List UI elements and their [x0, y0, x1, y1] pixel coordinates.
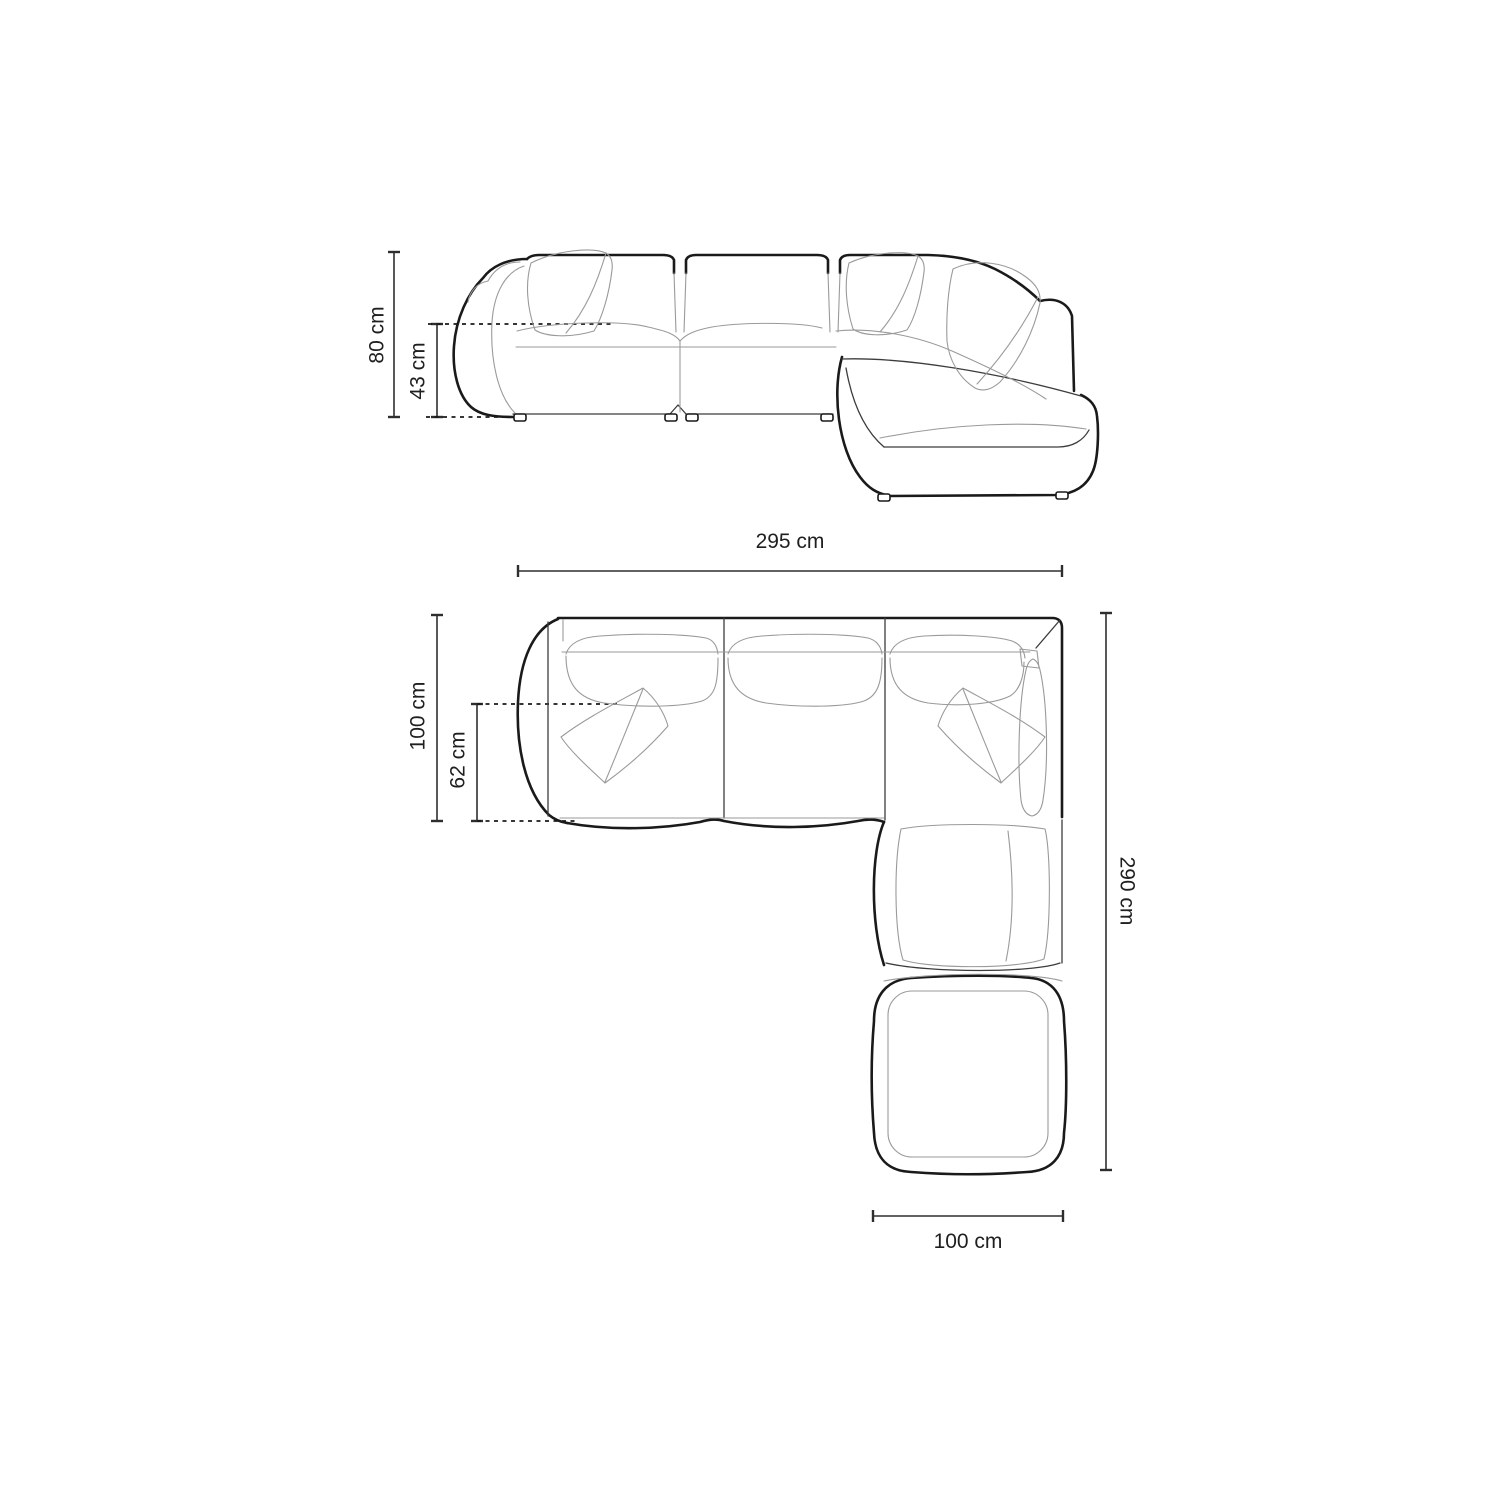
base-bottom-line: [513, 405, 833, 414]
dim-label-overall-width: 295 cm: [756, 530, 825, 553]
plan-outer-top-right-outline: [558, 618, 1062, 817]
diagram-canvas: 80 cm 43 cm: [0, 0, 1500, 1500]
dim-label-chaise-width: 100 cm: [934, 1230, 1003, 1253]
plan-left-throw-pillow: [561, 688, 668, 783]
dimension-seat-height: 43 cm: [406, 324, 612, 417]
chaise-top-far-edge: [842, 359, 1081, 396]
front-view: 80 cm 43 cm: [365, 250, 1098, 501]
sofa-foot: [821, 414, 833, 421]
top-sofa-drawing: [518, 618, 1067, 1174]
plan-corner-back-cushion: [1019, 659, 1047, 816]
dimension-overall-depth: 100 cm: [406, 615, 443, 821]
dimension-overall-length: 290 cm: [1100, 613, 1139, 1170]
plan-chaise-left-edge: [874, 822, 884, 965]
sofa-foot: [514, 414, 526, 421]
dimension-chaise-width: 100 cm: [873, 1210, 1063, 1253]
dim-label-seat-depth: 62 cm: [446, 731, 469, 788]
sofa-dimension-diagram: 80 cm 43 cm: [0, 0, 1500, 1500]
plan-ottoman-inner-cushion: [888, 991, 1048, 1157]
left-arm-outline: [454, 259, 527, 417]
back-cushion-1: [566, 634, 718, 706]
right-arm-outline: [1040, 300, 1074, 391]
chaise-front-face-edge: [884, 430, 1089, 447]
sofa-foot: [686, 414, 698, 421]
chaise-left-face-edge: [846, 368, 884, 447]
backrest-top-outline: [527, 255, 1040, 301]
front-sofa-drawing: [454, 250, 1098, 501]
dim-label-overall-length: 290 cm: [1116, 857, 1139, 926]
chaise-foot: [878, 494, 890, 501]
dimension-seat-depth: 62 cm: [446, 704, 618, 821]
left-arm-inner-seam: [492, 266, 524, 413]
top-view: 295 cm 100 cm 62 cm 290 cm: [406, 530, 1138, 1253]
dimension-overall-width: 295 cm: [518, 530, 1062, 577]
back-cushion-3: [890, 635, 1025, 705]
plan-corner-diagonal: [1036, 620, 1060, 648]
dim-label-seat-height: 43 cm: [406, 342, 429, 399]
plan-module-split-lines: [724, 618, 885, 820]
sofa-foot: [665, 414, 677, 421]
chaise-foot: [1056, 492, 1068, 499]
plan-left-arm-bulge: [518, 619, 567, 823]
dim-label-overall-height: 80 cm: [365, 306, 388, 363]
leaning-throw-pillow: [947, 263, 1040, 390]
seat-cushion-curves: [517, 323, 822, 341]
back-cushion-2: [728, 634, 882, 706]
plan-seat-front-wavy-edge: [567, 820, 884, 829]
corner-seat-curve: [836, 330, 1046, 399]
plan-chaise-seat-cushion: [896, 825, 1049, 967]
dim-label-overall-depth: 100 cm: [406, 682, 429, 751]
corner-throw-pillow: [846, 253, 924, 335]
plan-ottoman-outline: [872, 976, 1067, 1175]
chaise-top-cushion-curve: [880, 424, 1086, 438]
dimension-overall-height: 80 cm: [365, 252, 400, 417]
